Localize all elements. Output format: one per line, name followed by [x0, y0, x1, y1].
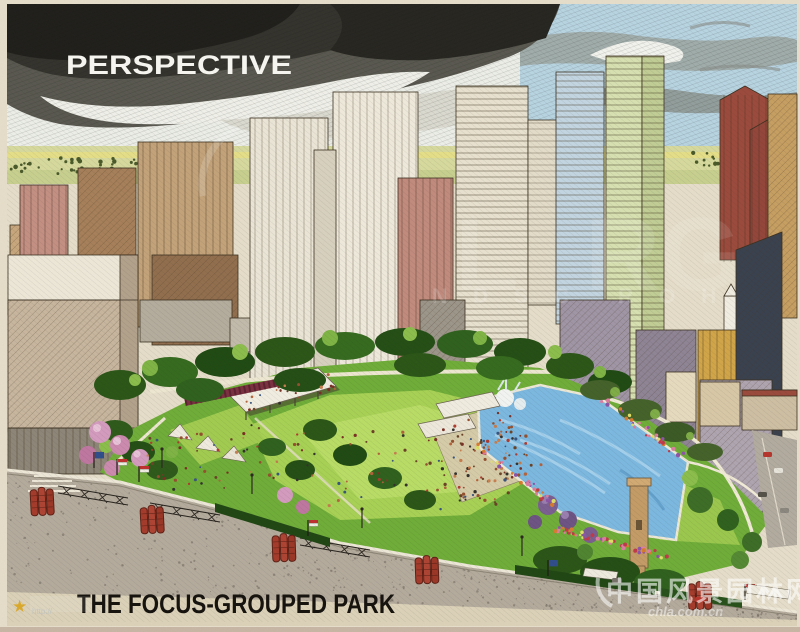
faint-url: http://	[32, 607, 53, 616]
ghost-letters-small: R O H	[618, 285, 726, 308]
perspective-illustration: L RG N D S C R O H PERSPECTIVE THE FOCUS…	[0, 0, 800, 632]
site-domain: chla.com.cn	[648, 604, 723, 619]
page-title: THE FOCUS-GROUPED PARK	[77, 589, 395, 619]
paper-grain	[7, 4, 797, 622]
ghost-letters-small: N D S C	[432, 285, 579, 308]
perspective-label: PERSPECTIVE	[66, 50, 292, 80]
scanned-rendering-page: L RG N D S C R O H PERSPECTIVE THE FOCUS…	[0, 0, 800, 632]
artwork: L RG N D S C R O H PERSPECTIVE THE FOCUS…	[7, 4, 800, 626]
star-icon: ★	[12, 597, 27, 616]
